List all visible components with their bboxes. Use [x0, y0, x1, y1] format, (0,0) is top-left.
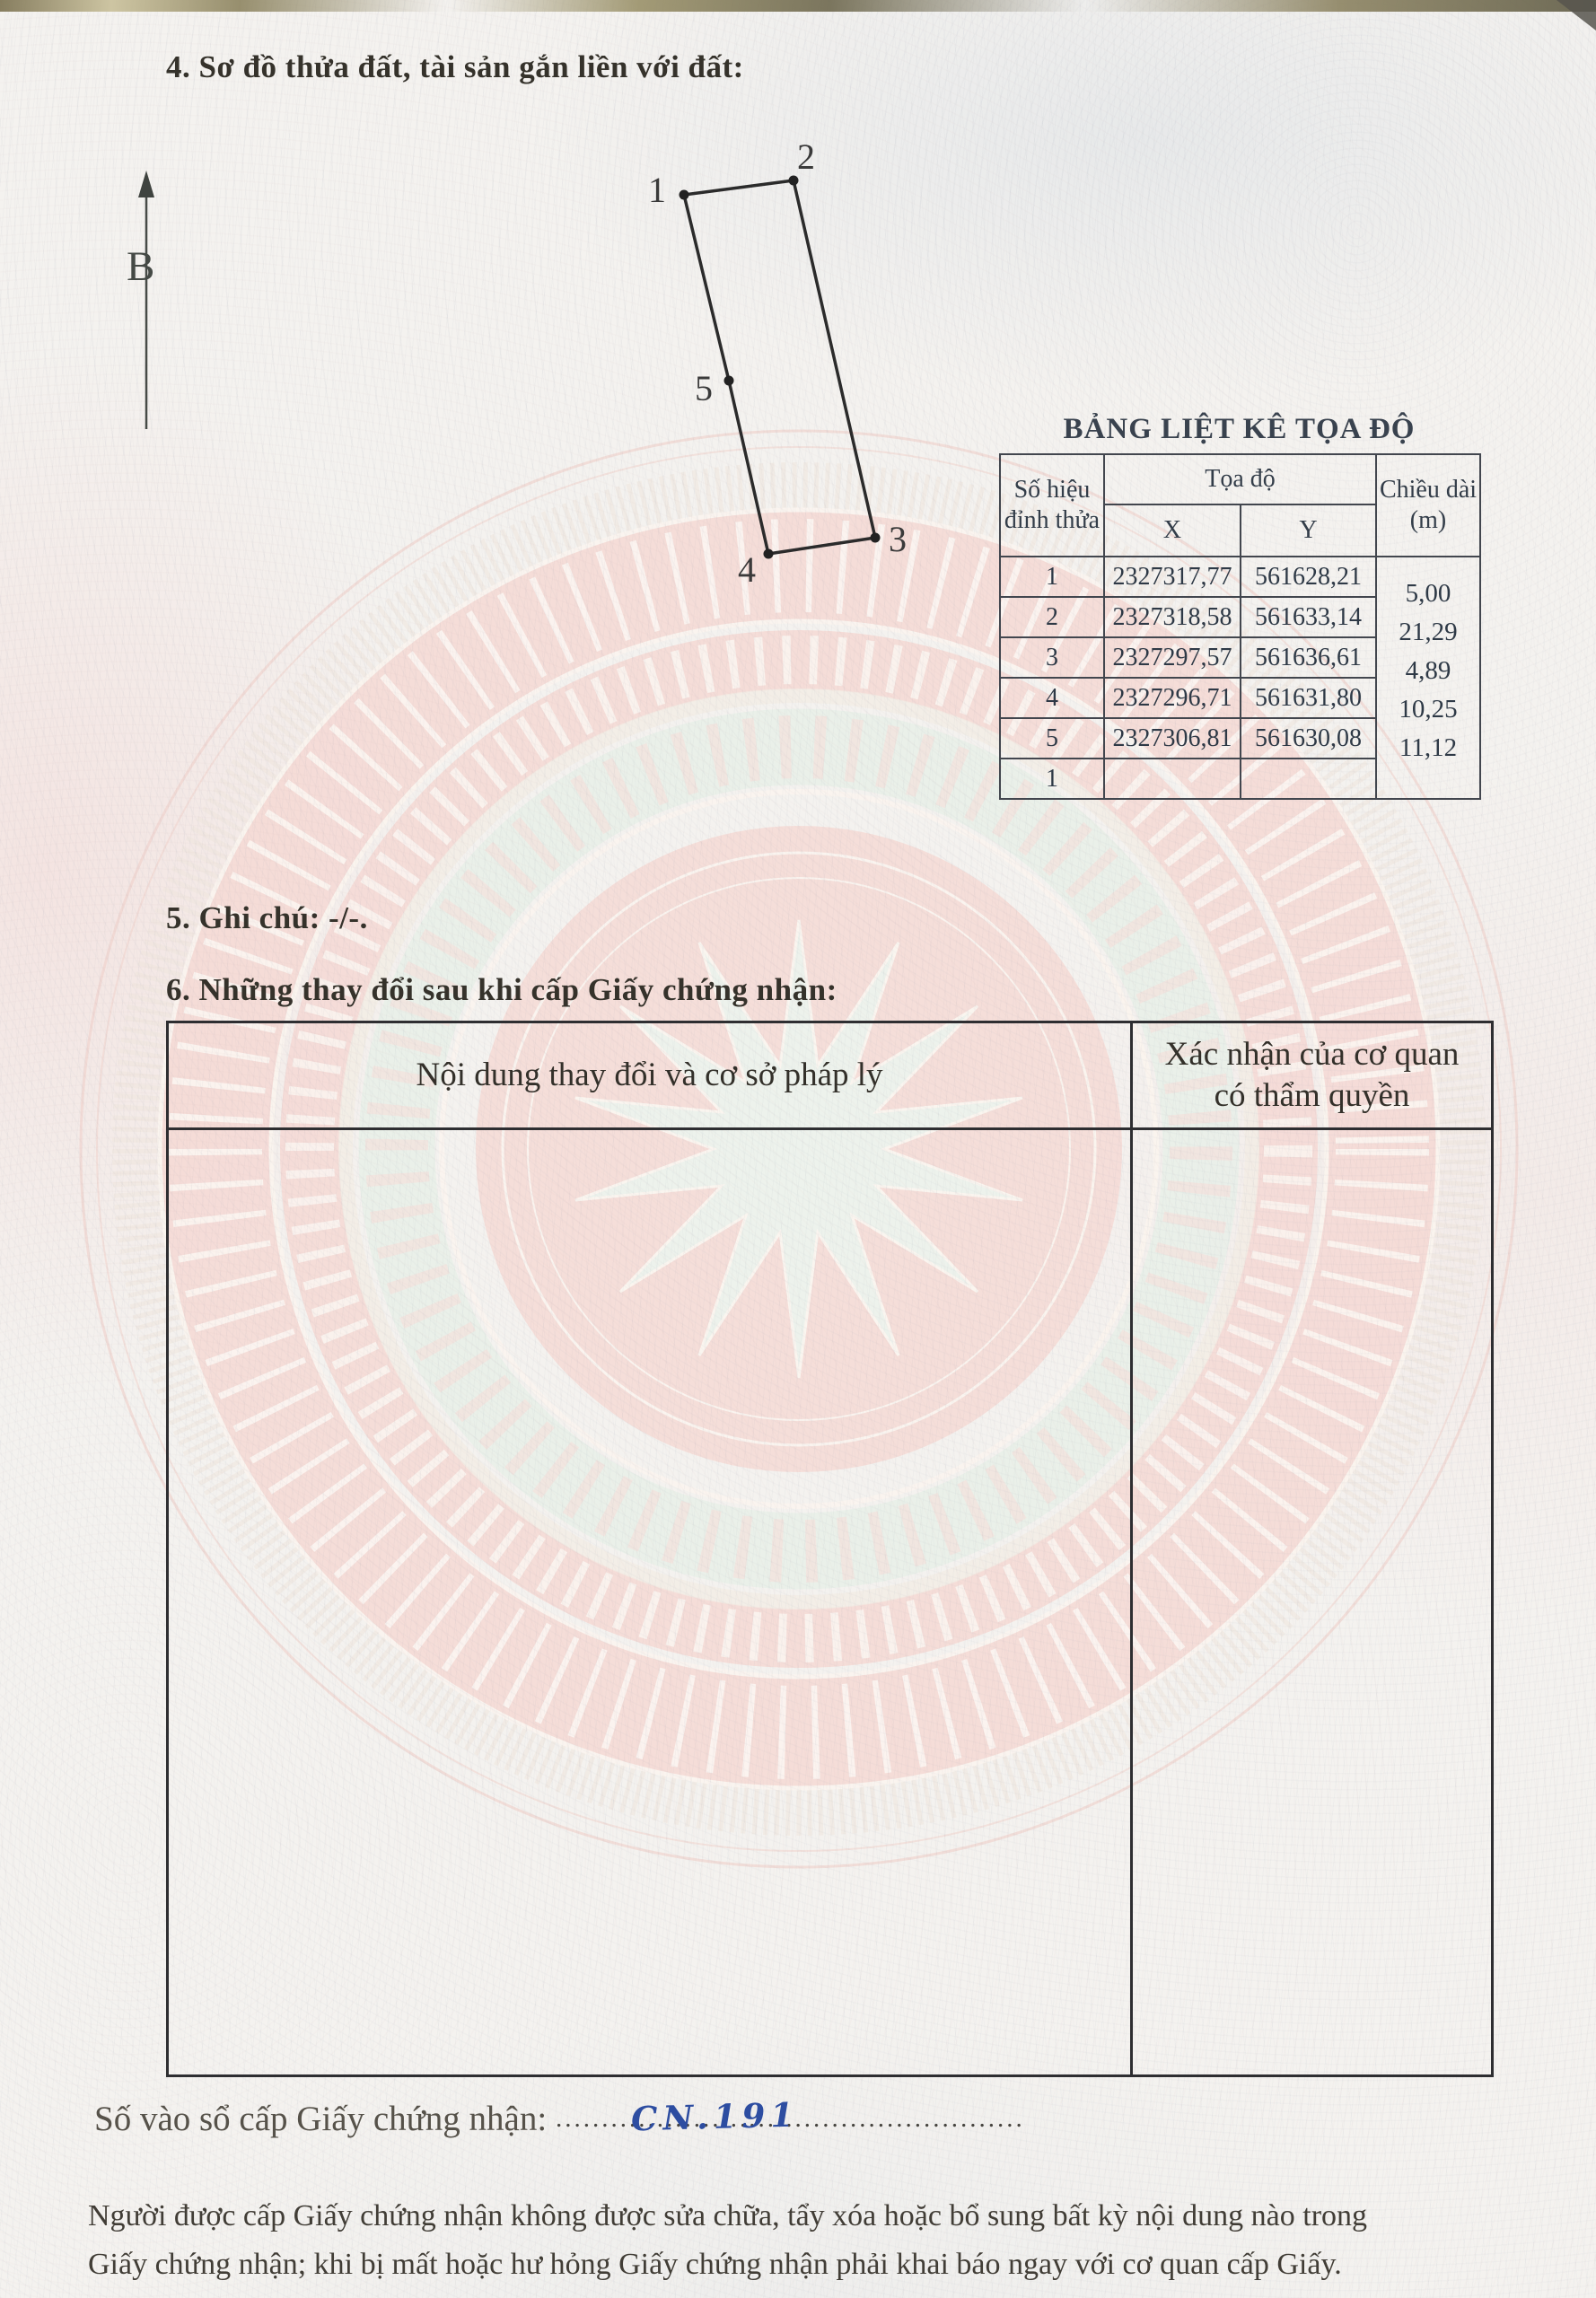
changes-col-content-header: Nội dung thay đổi và cơ sở pháp lý	[168, 1022, 1132, 1129]
vertex-id: 1	[1000, 557, 1104, 597]
changes-col-confirm-header: Xác nhận của cơ quan có thẩm quyền	[1132, 1022, 1493, 1129]
vertex-dot-3	[871, 533, 881, 543]
vertex-dot-1	[680, 190, 689, 200]
coordinate-table-block: BẢNG LIỆT KÊ TỌA ĐỘ Số hiệu đỉnh thửa Tọ…	[999, 413, 1479, 800]
length-value: 21,29	[1377, 617, 1479, 648]
footer-line-2: Giấy chứng nhận; khi bị mất hoặc hư hỏng…	[88, 2241, 1551, 2289]
col-header-y: Y	[1241, 504, 1376, 557]
length-column: 5,00 21,29 4,89 10,25 11,12	[1376, 557, 1480, 799]
parcel-diagram: 1 2 3 4 5	[566, 126, 960, 628]
changes-col-confirm-line1: Xác nhận của cơ quan	[1165, 1036, 1460, 1073]
length-value: 11,12	[1377, 732, 1479, 764]
col-header-x: X	[1104, 504, 1241, 557]
vertex-dot-5	[724, 376, 734, 386]
length-value: 5,00	[1377, 578, 1479, 610]
section-4-heading: 4. Sơ đồ thửa đất, tài sản gắn liền với …	[166, 49, 744, 85]
vertex-id: 2	[1000, 597, 1104, 637]
registry-label: Số vào sổ cấp Giấy chứng nhận:	[94, 2100, 547, 2138]
col-header-length-line1: Chiều dài	[1380, 476, 1477, 504]
vertex-label-1: 1	[648, 170, 666, 210]
col-header-length-line2: (m)	[1410, 506, 1446, 534]
parcel-boundary	[684, 180, 875, 554]
vertex-dot-2	[789, 176, 799, 186]
coord-y: 561633,14	[1241, 597, 1376, 637]
coord-x	[1104, 759, 1241, 799]
vertex-id: 4	[1000, 678, 1104, 718]
changes-col-confirm-line2: có thẩm quyền	[1215, 1077, 1410, 1114]
col-header-vertex: Số hiệu đỉnh thửa	[1000, 454, 1104, 557]
vertex-dot-4	[764, 549, 774, 559]
vertex-id: 3	[1000, 637, 1104, 678]
coordinate-table-title: BẢNG LIỆT KÊ TỌA ĐỘ	[999, 413, 1479, 446]
vertex-label-2: 2	[797, 136, 815, 177]
vertex-label-5: 5	[695, 368, 713, 408]
coord-y: 561628,21	[1241, 557, 1376, 597]
coord-x: 2327297,57	[1104, 637, 1241, 678]
coord-y: 561636,61	[1241, 637, 1376, 678]
coord-y: 561631,80	[1241, 678, 1376, 718]
section-5-heading: 5. Ghi chú: -/-.	[166, 900, 368, 936]
coord-x: 2327318,58	[1104, 597, 1241, 637]
footer-line-1: Người được cấp Giấy chứng nhận không đượ…	[88, 2192, 1551, 2241]
north-arrow-head	[138, 171, 154, 197]
coord-y	[1241, 759, 1376, 799]
changes-content-cell	[168, 1129, 1132, 2076]
col-header-vertex-line2: đỉnh thửa	[1004, 506, 1100, 534]
coord-x: 2327296,71	[1104, 678, 1241, 718]
vertex-label-4: 4	[738, 549, 756, 590]
vertex-label-3: 3	[889, 519, 907, 559]
north-label: B	[127, 243, 154, 290]
col-header-length: Chiều dài (m)	[1376, 454, 1480, 557]
coord-x: 2327317,77	[1104, 557, 1241, 597]
vertex-id: 5	[1000, 718, 1104, 759]
coord-x: 2327306,81	[1104, 718, 1241, 759]
footer-note: Người được cấp Giấy chứng nhận không đượ…	[88, 2192, 1551, 2290]
changes-confirm-cell	[1132, 1129, 1493, 2076]
col-header-vertex-line1: Số hiệu	[1014, 476, 1091, 504]
changes-table: Nội dung thay đổi và cơ sở pháp lý Xác n…	[166, 1021, 1494, 2077]
col-header-coords: Tọa độ	[1104, 454, 1376, 504]
vertex-id: 1	[1000, 759, 1104, 799]
registry-handwritten-number: CN.191	[630, 2095, 799, 2139]
section-6-heading: 6. Những thay đổi sau khi cấp Giấy chứng…	[166, 972, 837, 1008]
coord-y: 561630,08	[1241, 718, 1376, 759]
registry-number-line: Số vào sổ cấp Giấy chứng nhận: .........…	[94, 2099, 1351, 2162]
certificate-page: 4. Sơ đồ thửa đất, tài sản gắn liền với …	[0, 0, 1596, 2298]
coordinate-table: Số hiệu đỉnh thửa Tọa độ Chiều dài (m) X…	[999, 453, 1481, 800]
length-value: 4,89	[1377, 655, 1479, 687]
page-content: 4. Sơ đồ thửa đất, tài sản gắn liền với …	[0, 0, 1596, 2298]
north-arrow: B	[106, 154, 189, 442]
length-value: 10,25	[1377, 694, 1479, 725]
coord-row: 1 2327317,77 561628,21 5,00 21,29 4,89 1…	[1000, 557, 1480, 597]
